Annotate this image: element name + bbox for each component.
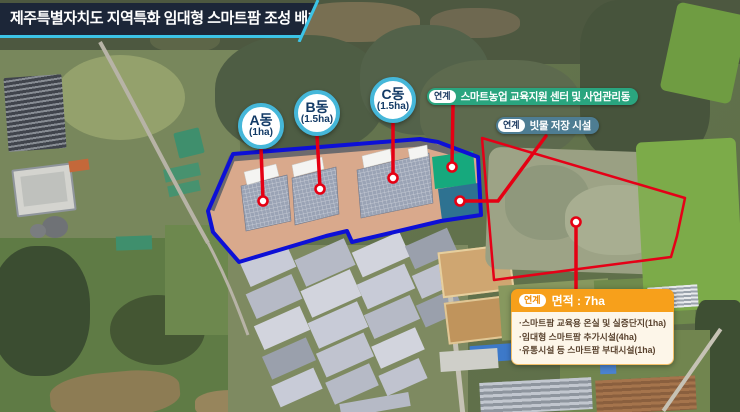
info-box-body: ·스마트팜 교육용 온실 및 실증단지(1ha) ·임대형 스마트팜 추가시설(…	[511, 312, 674, 365]
greenhouse-c-label: C동	[382, 87, 405, 101]
link-badge: 연계	[498, 119, 525, 132]
link-badge: 연계	[519, 294, 546, 307]
info-item: ·유통시설 등 스마트팜 부대시설(1ha)	[519, 344, 666, 358]
site-plan-map: 제주특별자치도 지역특화 임대형 스마트팜 조성 배치도 A동 (1ha) B동…	[0, 0, 740, 412]
callout-greenhouse-b: B동 (1.5ha)	[294, 90, 340, 136]
marker-dot-icon	[316, 185, 325, 194]
info-item: ·임대형 스마트팜 추가시설(4ha)	[519, 331, 666, 345]
rainwater-storage-label: 빗물 저장 시설	[530, 118, 591, 133]
info-item: ·스마트팜 교육용 온실 및 실증단지(1ha)	[519, 317, 666, 331]
linked-area-boundary-red	[482, 138, 685, 280]
greenhouse-b-label: B동	[306, 100, 329, 114]
link-badge: 연계	[429, 90, 456, 103]
marker-dot-icon	[456, 197, 465, 206]
info-box-header: 연계 면적 : 7ha	[511, 289, 674, 312]
info-box-title: 면적 : 7ha	[552, 292, 605, 309]
marker-dot-icon	[259, 197, 268, 206]
callout-education-center: 연계 스마트농업 교육지원 센터 및 사업관리동	[427, 88, 638, 105]
marker-dot-icon	[448, 163, 457, 172]
greenhouse-a-label: A동	[250, 113, 273, 127]
greenhouse-a-area: (1ha)	[249, 127, 273, 139]
marker-dot-icon	[389, 174, 398, 183]
road	[100, 42, 208, 243]
page-title: 제주특별자치도 지역특화 임대형 스마트팜 조성 배치도	[0, 3, 320, 35]
connector-a	[261, 148, 263, 199]
callout-greenhouse-a: A동 (1ha)	[238, 103, 284, 149]
marker-dot-icon	[572, 218, 581, 227]
title-slash-accent-icon	[288, 0, 328, 42]
callout-rainwater-storage: 연계 빗물 저장 시설	[496, 117, 599, 134]
greenhouse-c-area: (1.5ha)	[377, 101, 409, 113]
page-title-text: 제주특별자치도 지역특화 임대형 스마트팜 조성 배치도	[10, 10, 334, 27]
title-underline	[0, 35, 302, 38]
connector-education	[452, 105, 453, 165]
callout-greenhouse-c: C동 (1.5ha)	[370, 77, 416, 123]
greenhouse-b-area: (1.5ha)	[301, 114, 333, 126]
education-center-label: 스마트농업 교육지원 센터 및 사업관리동	[461, 89, 631, 104]
linked-area-info-box: 연계 면적 : 7ha ·스마트팜 교육용 온실 및 실증단지(1ha) ·임대…	[511, 289, 674, 365]
